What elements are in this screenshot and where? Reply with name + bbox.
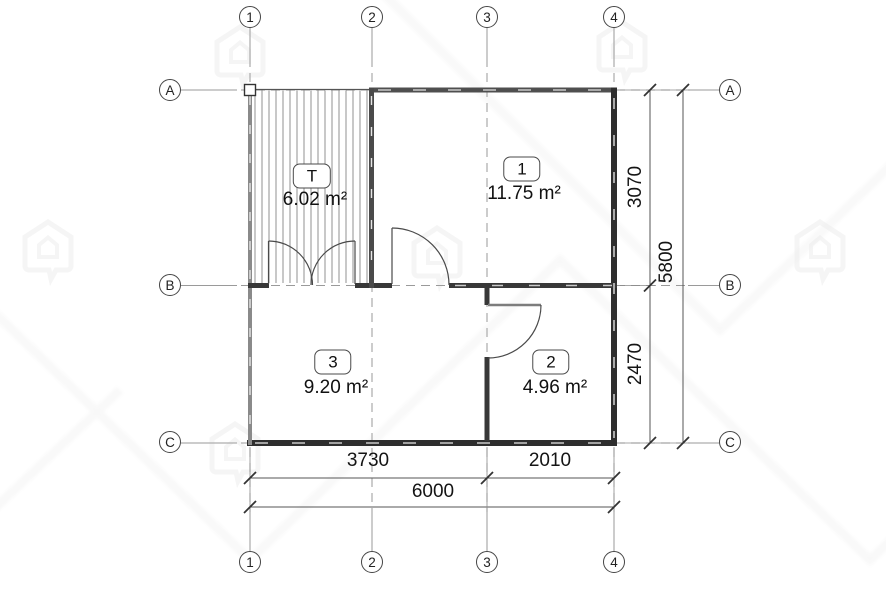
room-tag-3: 3 xyxy=(314,350,351,375)
dim-right-total: 5800 xyxy=(656,241,678,283)
grid-bubble-col-2-bottom: 2 xyxy=(361,551,383,573)
grid-bubble-row-a-right: A xyxy=(719,79,741,101)
grid-bubble-row-c-right: C xyxy=(719,431,741,453)
grid-bubble-col-3-bottom: 3 xyxy=(476,551,498,573)
grid-bubble-row-b-right: B xyxy=(719,274,741,296)
dim-bottom-left: 3730 xyxy=(347,450,389,472)
dim-right-lower: 2470 xyxy=(625,343,647,385)
doors xyxy=(269,228,542,358)
grid-bubble-col-1-top: 1 xyxy=(239,6,261,28)
grid-bubble-row-c-left: C xyxy=(159,431,181,453)
terrace-double-door xyxy=(269,241,356,285)
dim-bottom-right: 2010 xyxy=(529,450,571,472)
room-area-2: 4.96 m² xyxy=(523,377,587,399)
room-area-3: 9.20 m² xyxy=(304,377,368,399)
grid-bubble-col-1-bottom: 1 xyxy=(239,551,261,573)
dim-bottom-total: 6000 xyxy=(412,481,454,503)
grid-bubble-row-b-left: B xyxy=(159,274,181,296)
grid-bubble-row-a-left: A xyxy=(159,79,181,101)
room2-door xyxy=(488,305,541,358)
grid-bubble-col-4-bottom: 4 xyxy=(603,551,625,573)
room-area-terrace: 6.02 m² xyxy=(283,189,347,211)
room-tag-2: 2 xyxy=(532,350,569,375)
grid-bubble-col-4-top: 4 xyxy=(603,6,625,28)
grid-bubble-col-3-top: 3 xyxy=(476,6,498,28)
floor-plan-canvas: 1 2 3 4 1 2 3 4 A B C A B C T 6.02 m² 1 … xyxy=(0,0,886,590)
grid-bubble-col-2-top: 2 xyxy=(361,6,383,28)
room-area-1: 11.75 m² xyxy=(487,183,561,205)
room-tag-1: 1 xyxy=(503,157,540,182)
room-tag-terrace: T xyxy=(293,164,331,189)
dim-right-upper: 3070 xyxy=(625,166,647,208)
